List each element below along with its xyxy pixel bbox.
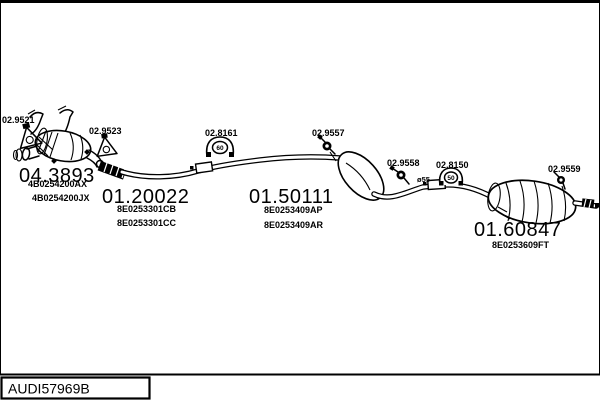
fitting-code-9521: 02.9521	[2, 115, 35, 125]
centre-silencer-drawing	[330, 144, 492, 209]
drawing-id-box: AUDI57969B	[2, 378, 150, 399]
fitting-code-9557: 02.9557	[312, 128, 345, 138]
pipe-diameter-label: ø55	[417, 175, 430, 184]
part-code-rear-silencer: 01.60847	[474, 219, 561, 241]
fitting-code-9559: 02.9559	[548, 164, 581, 174]
clamp-icon-8150: 50	[439, 168, 463, 186]
diagram-canvas: 60 50 02.9521 02.9523 02.8161 02.9557 02…	[0, 0, 600, 400]
fitting-code-9523: 02.9523	[89, 126, 122, 136]
part-number: 4B0254200AX	[28, 179, 87, 189]
rubber-hanger-icon-9558	[389, 165, 409, 184]
part-number: 8E0253301CC	[117, 218, 177, 228]
part-number: 8E0253301CB	[117, 204, 177, 214]
drawing-id: AUDI57969B	[8, 381, 90, 397]
clamp-size-label: 60	[216, 145, 224, 152]
fitting-code-9558: 02.9558	[387, 158, 420, 168]
clamp-icon-8161: 60	[206, 137, 234, 157]
part-number: 8E0253609FT	[492, 240, 550, 250]
part-number: 4B0254200JX	[32, 193, 90, 203]
front-pipe-drawing	[122, 157, 340, 177]
fitting-code-8150: 02.8150	[436, 160, 469, 170]
fitting-code-8161: 02.8161	[205, 128, 238, 138]
clamp-size-label: 50	[447, 175, 455, 182]
part-number: 8E0253409AR	[264, 220, 324, 230]
part-number: 8E0253409AP	[264, 205, 323, 215]
exhaust-system-diagram: 60 50 02.9521 02.9523 02.8161 02.9557 02…	[0, 0, 600, 400]
part-code-labels: 04.3893 4B0254200AX 4B0254200JX 01.20022…	[19, 165, 561, 250]
